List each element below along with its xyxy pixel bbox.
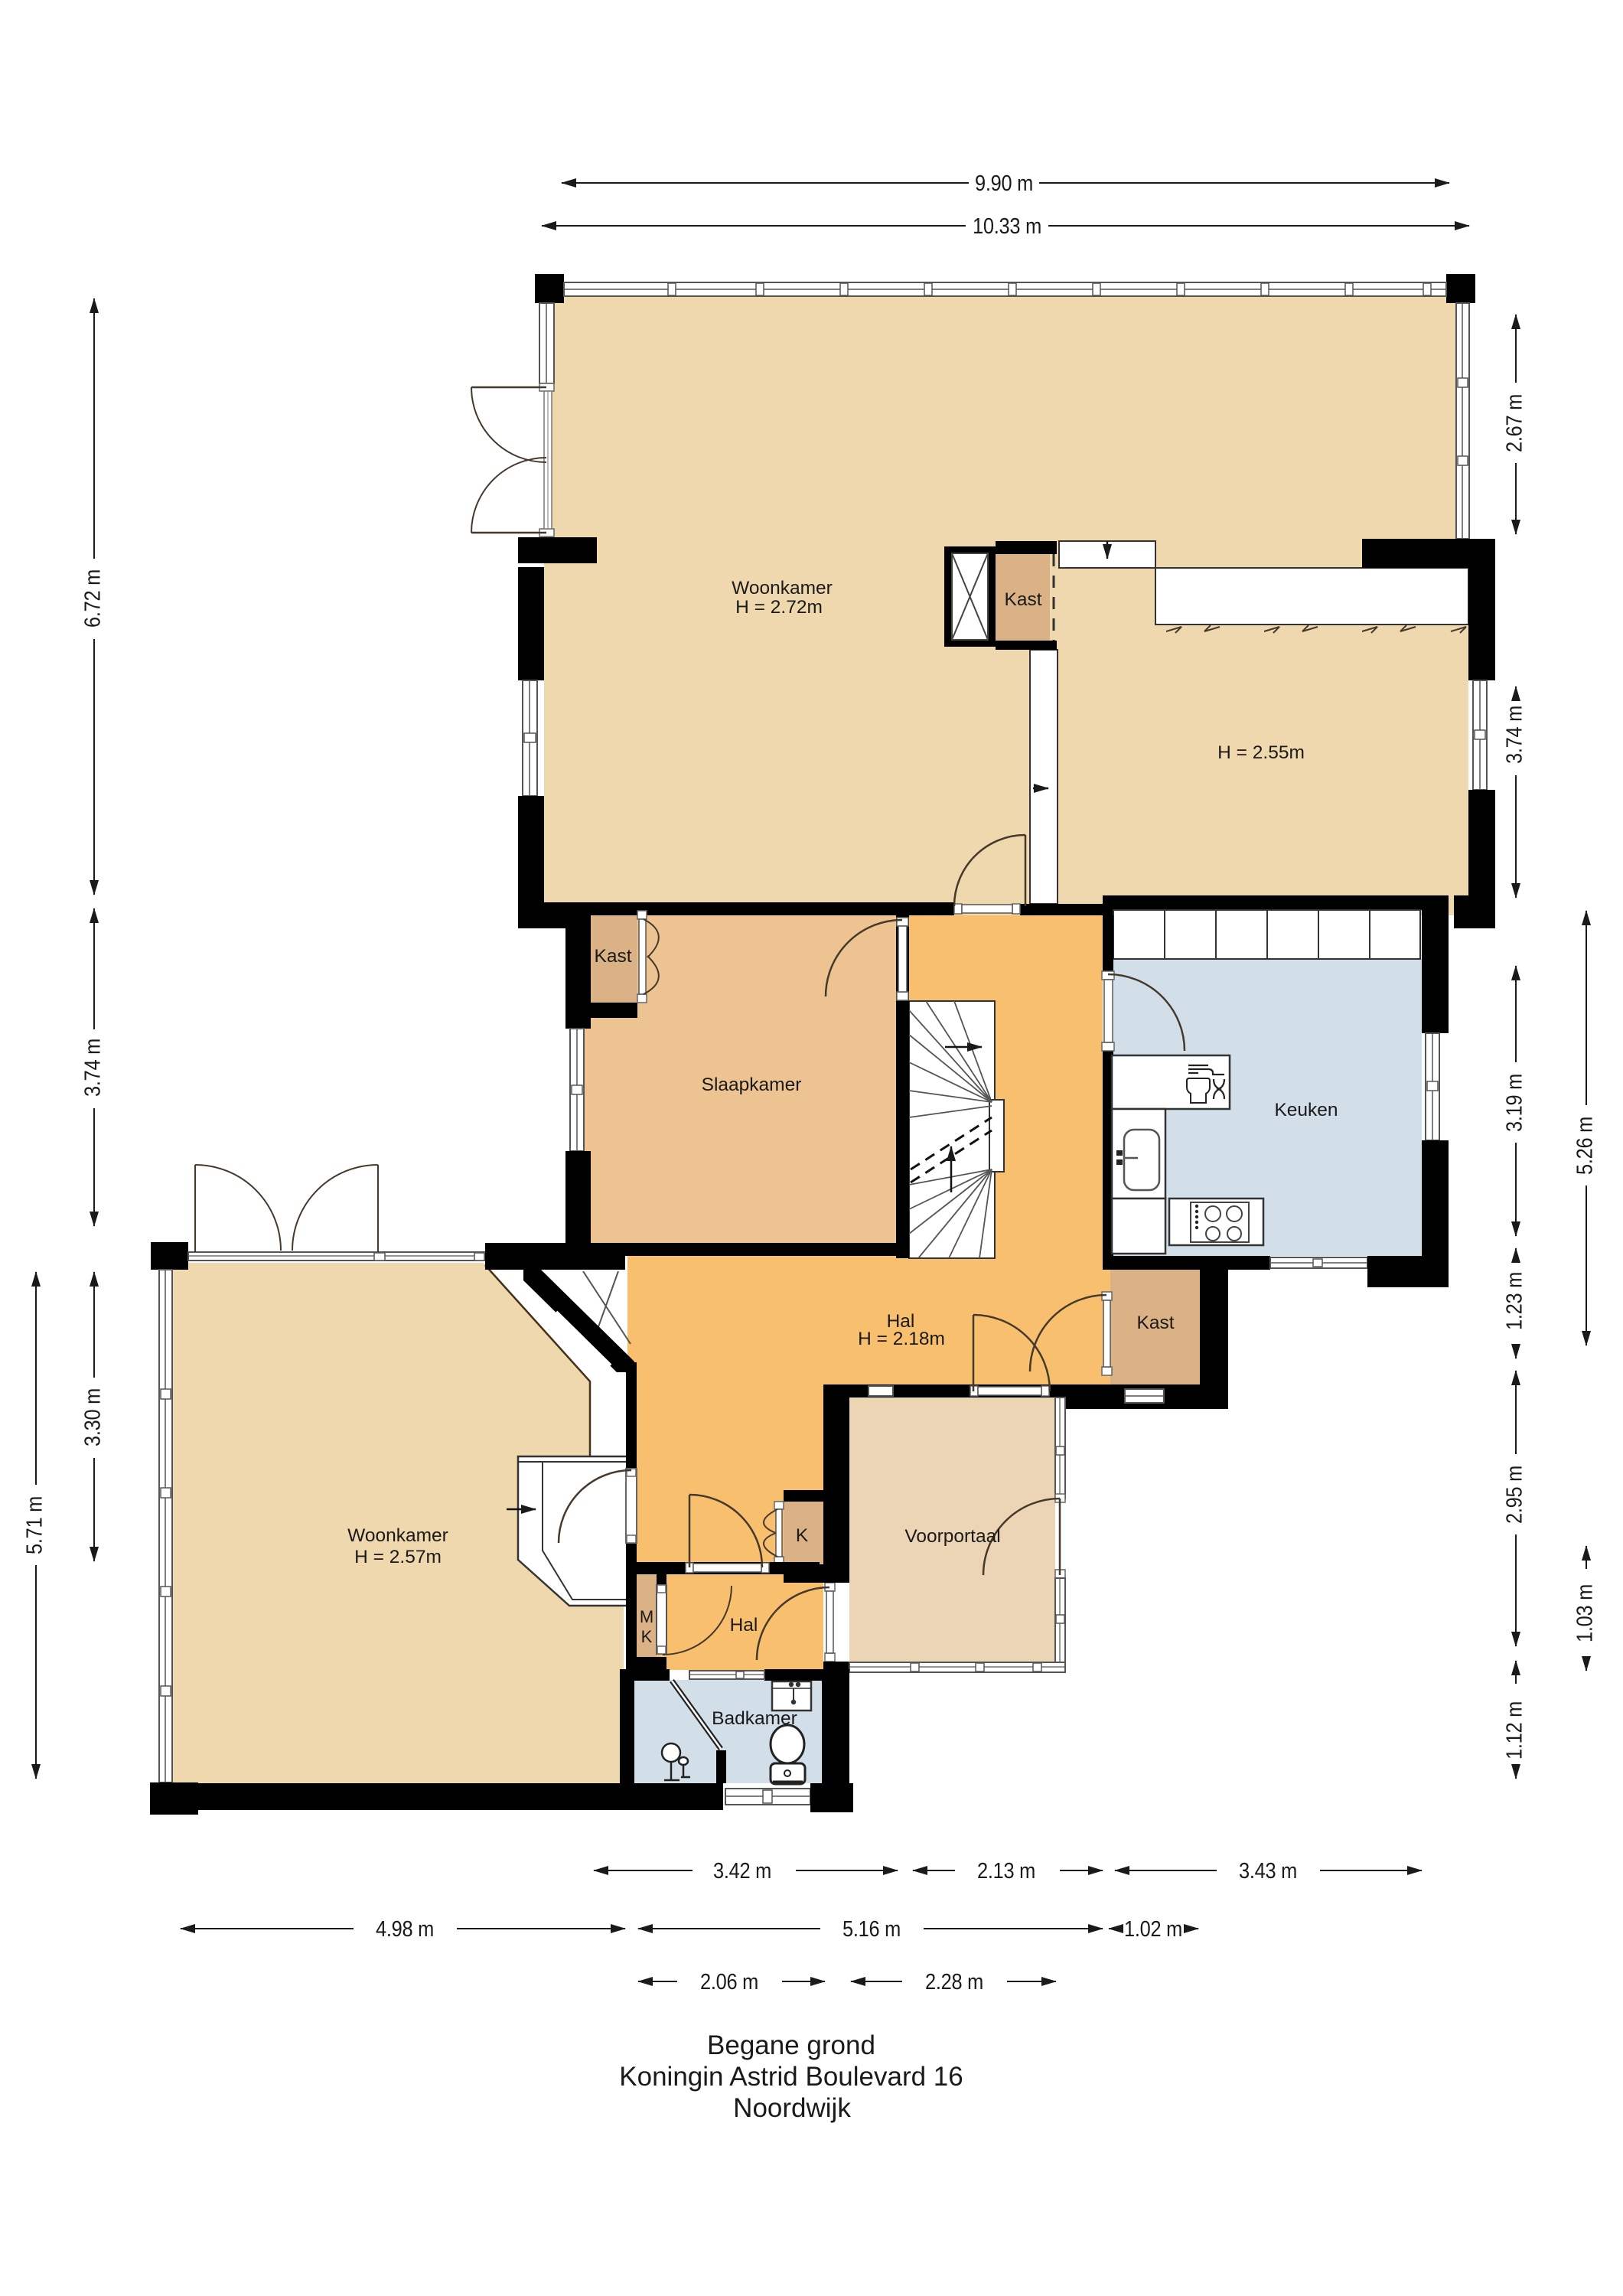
svg-text:3.43 m: 3.43 m (1239, 1859, 1297, 1883)
svg-text:3.30 m: 3.30 m (81, 1388, 106, 1446)
svg-text:6.72 m: 6.72 m (81, 569, 106, 628)
svg-text:Koningin Astrid Boulevard 16: Koningin Astrid Boulevard 16 (619, 2062, 963, 2092)
svg-text:Begane grond: Begane grond (707, 2030, 875, 2060)
svg-text:1.23 m: 1.23 m (1503, 1272, 1527, 1330)
svg-text:2.67 m: 2.67 m (1503, 394, 1527, 452)
svg-text:1.12 m: 1.12 m (1503, 1701, 1527, 1760)
svg-text:Keuken: Keuken (1274, 1100, 1338, 1120)
svg-text:H = 2.55m: H = 2.55m (1217, 742, 1305, 763)
svg-text:M: M (640, 1607, 653, 1626)
svg-text:Kast: Kast (1136, 1313, 1174, 1333)
svg-text:5.26 m: 5.26 m (1573, 1117, 1598, 1175)
svg-text:K: K (796, 1525, 809, 1546)
svg-text:H = 2.72m: H = 2.72m (735, 597, 823, 618)
svg-text:3.74 m: 3.74 m (81, 1039, 106, 1097)
svg-text:Hal: Hal (730, 1615, 758, 1636)
svg-text:H = 2.57m: H = 2.57m (354, 1547, 442, 1567)
svg-text:1.02 m: 1.02 m (1124, 1917, 1182, 1942)
svg-text:K: K (641, 1627, 653, 1646)
svg-text:5.16 m: 5.16 m (842, 1917, 901, 1942)
svg-text:3.19 m: 3.19 m (1503, 1074, 1527, 1132)
svg-text:Kast: Kast (594, 946, 631, 967)
svg-text:1.03 m: 1.03 m (1573, 1584, 1598, 1642)
svg-text:4.98 m: 4.98 m (376, 1917, 434, 1942)
svg-text:10.33 m: 10.33 m (973, 214, 1041, 239)
svg-text:2.95 m: 2.95 m (1503, 1466, 1527, 1524)
svg-text:Badkamer: Badkamer (712, 1708, 797, 1729)
svg-text:Woonkamer: Woonkamer (732, 578, 833, 598)
svg-text:2.28 m: 2.28 m (925, 1970, 983, 1994)
svg-text:Noordwijk: Noordwijk (733, 2093, 851, 2123)
svg-text:2.06 m: 2.06 m (700, 1970, 758, 1994)
svg-text:9.90 m: 9.90 m (975, 171, 1033, 196)
svg-text:H = 2.18m: H = 2.18m (858, 1329, 945, 1349)
svg-text:3.74 m: 3.74 m (1503, 706, 1527, 764)
svg-text:Woonkamer: Woonkamer (347, 1525, 448, 1546)
svg-text:Slaapkamer: Slaapkamer (702, 1075, 802, 1095)
svg-text:3.42 m: 3.42 m (713, 1859, 771, 1883)
svg-text:Voorportaal: Voorportaal (904, 1526, 1000, 1547)
svg-text:2.13 m: 2.13 m (977, 1859, 1035, 1883)
svg-text:5.71 m: 5.71 m (23, 1496, 47, 1554)
svg-text:Kast: Kast (1004, 589, 1041, 610)
